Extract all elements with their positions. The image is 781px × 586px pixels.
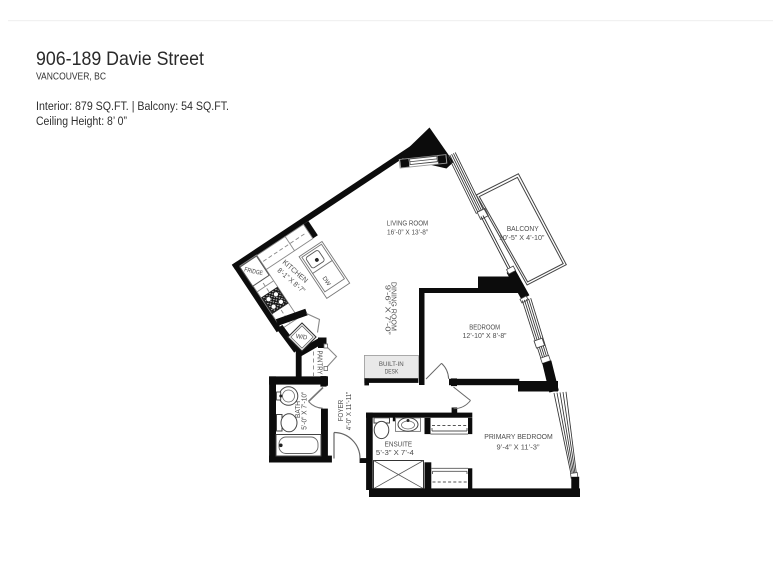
svg-text:BALCONY: BALCONY <box>507 224 539 233</box>
svg-text:4’-0” X 11’-11”: 4’-0” X 11’-11” <box>344 391 353 430</box>
svg-text:16’-0” X 13’-8”: 16’-0” X 13’-8” <box>387 227 428 236</box>
svg-text:5’-3” X 7’-4: 5’-3” X 7’-4 <box>376 448 414 457</box>
svg-text:PRIMARY BEDROOM: PRIMARY BEDROOM <box>484 432 553 441</box>
svg-text:DESK: DESK <box>385 368 399 375</box>
svg-text:906-189 Davie Street: 906-189 Davie Street <box>36 48 205 70</box>
svg-text:BEDROOM: BEDROOM <box>469 322 500 331</box>
svg-text:VANCOUVER, BC: VANCOUVER, BC <box>36 72 106 83</box>
svg-text:Interior: 879 SQ.FT. | Balcony: Interior: 879 SQ.FT. | Balcony: 54 SQ.FT… <box>36 99 229 113</box>
svg-text:PANTRY: PANTRY <box>315 351 324 375</box>
svg-text:10’-5” X 4’-10”: 10’-5” X 4’-10” <box>499 233 545 242</box>
svg-text:12’-10” X 8’-8”: 12’-10” X 8’-8” <box>463 331 507 340</box>
svg-text:9’-4” X 11’-3”: 9’-4” X 11’-3” <box>497 442 540 451</box>
svg-text:LIVING ROOM: LIVING ROOM <box>387 219 429 228</box>
svg-text:BUILT-IN: BUILT-IN <box>379 361 404 368</box>
svg-text:9’-6” X 7’-0”: 9’-6” X 7’-0” <box>384 285 393 336</box>
svg-text:Ceiling Height: 8’ 0”: Ceiling Height: 8’ 0” <box>36 114 127 128</box>
svg-text:5’-0” X 7’-10”: 5’-0” X 7’-10” <box>300 391 309 429</box>
